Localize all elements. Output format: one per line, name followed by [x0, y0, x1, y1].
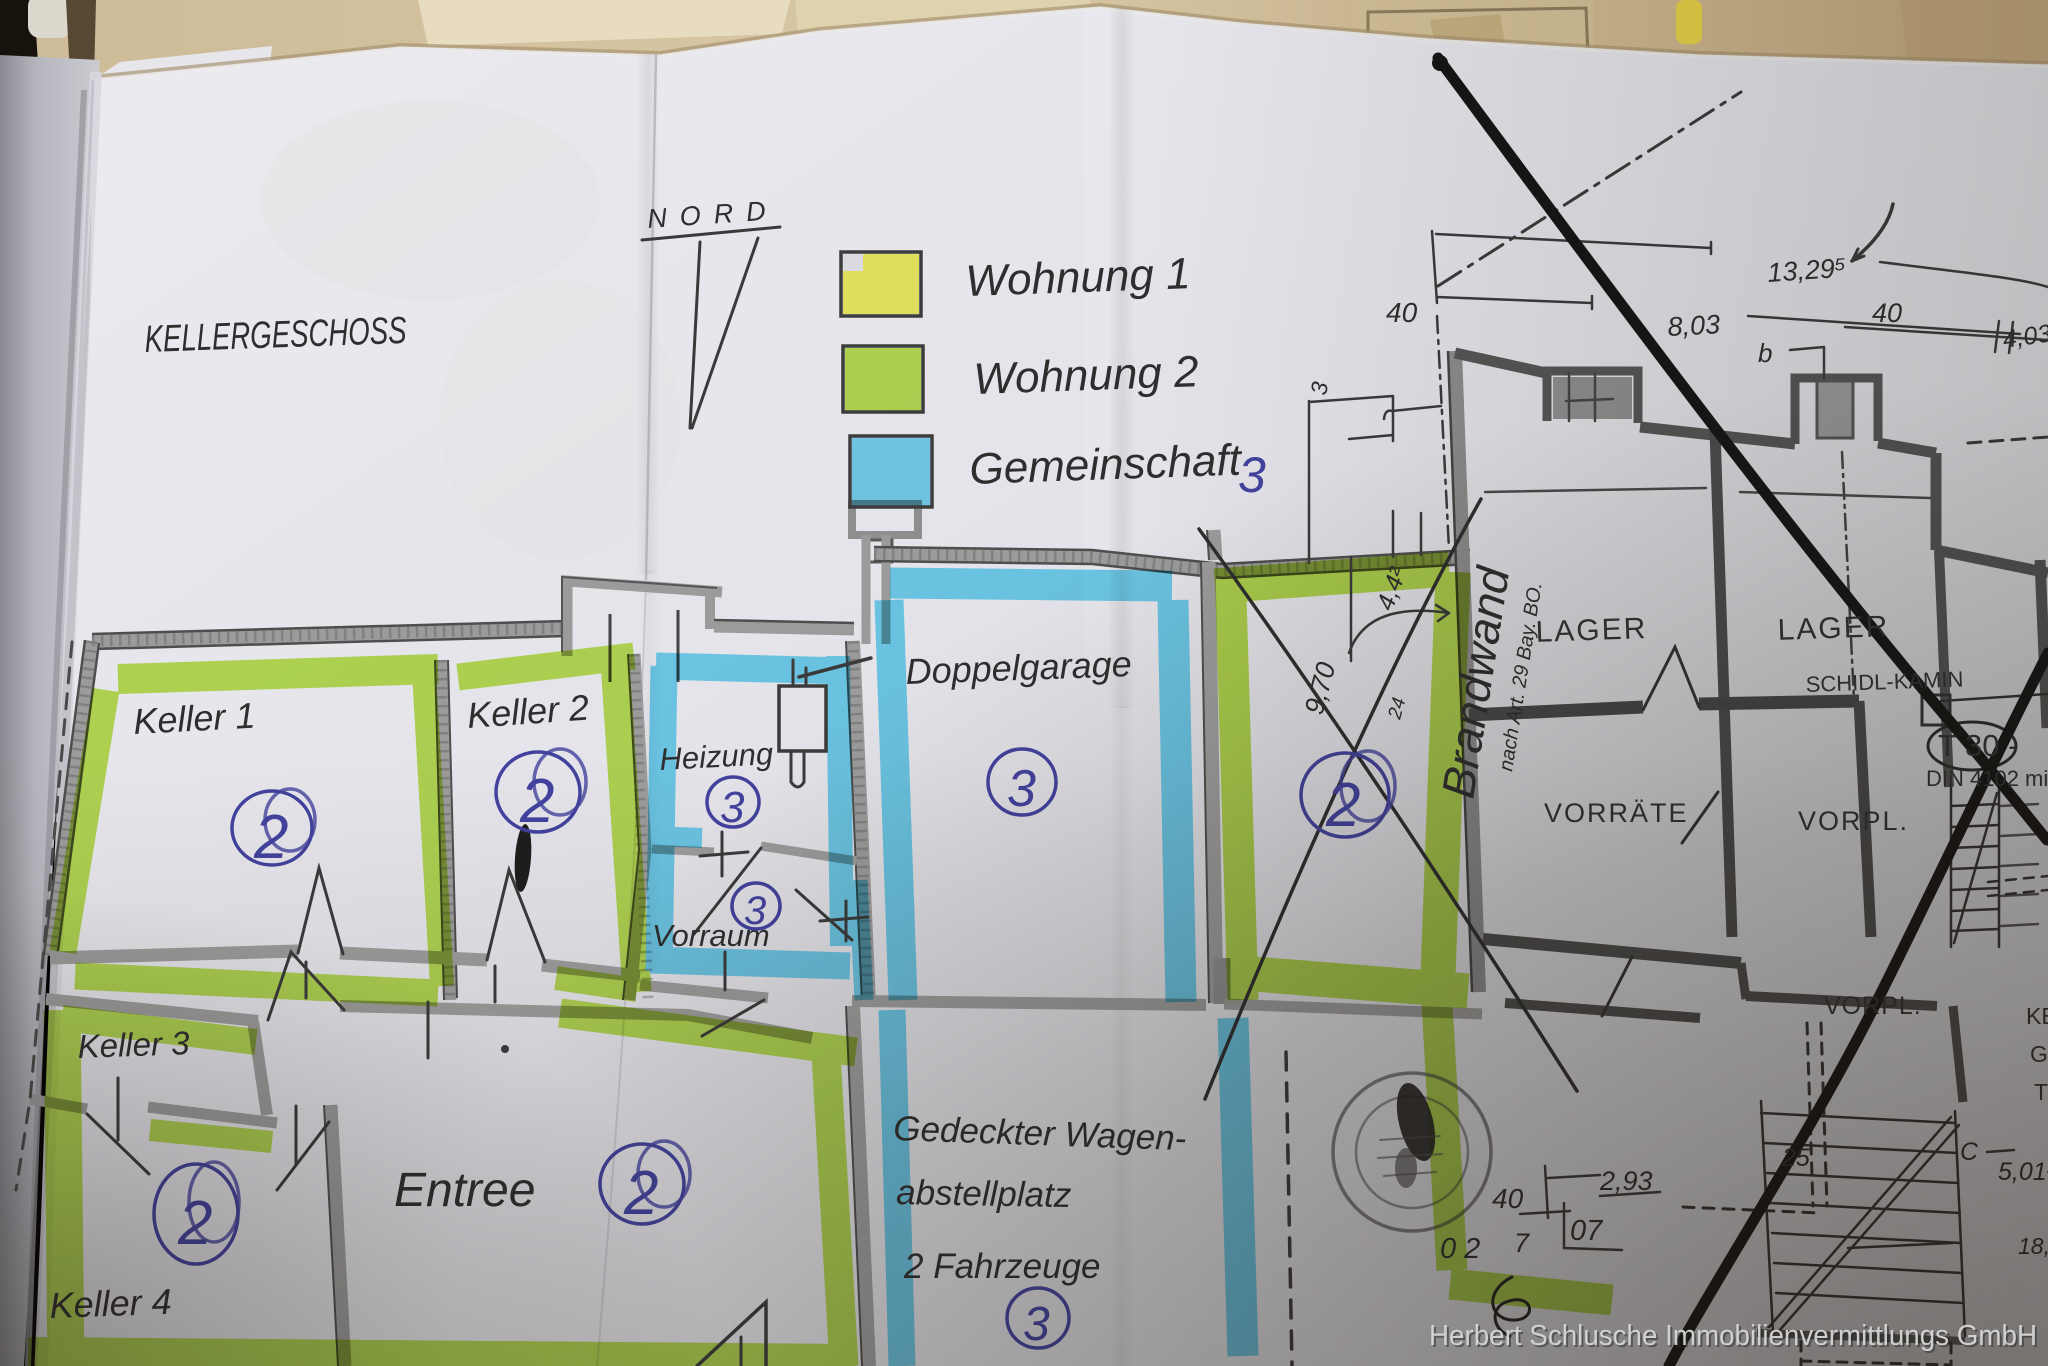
svg-text:Herbert Schlusche Immobilienve: Herbert Schlusche Immobilienvermittlungs…: [1429, 1320, 2037, 1352]
